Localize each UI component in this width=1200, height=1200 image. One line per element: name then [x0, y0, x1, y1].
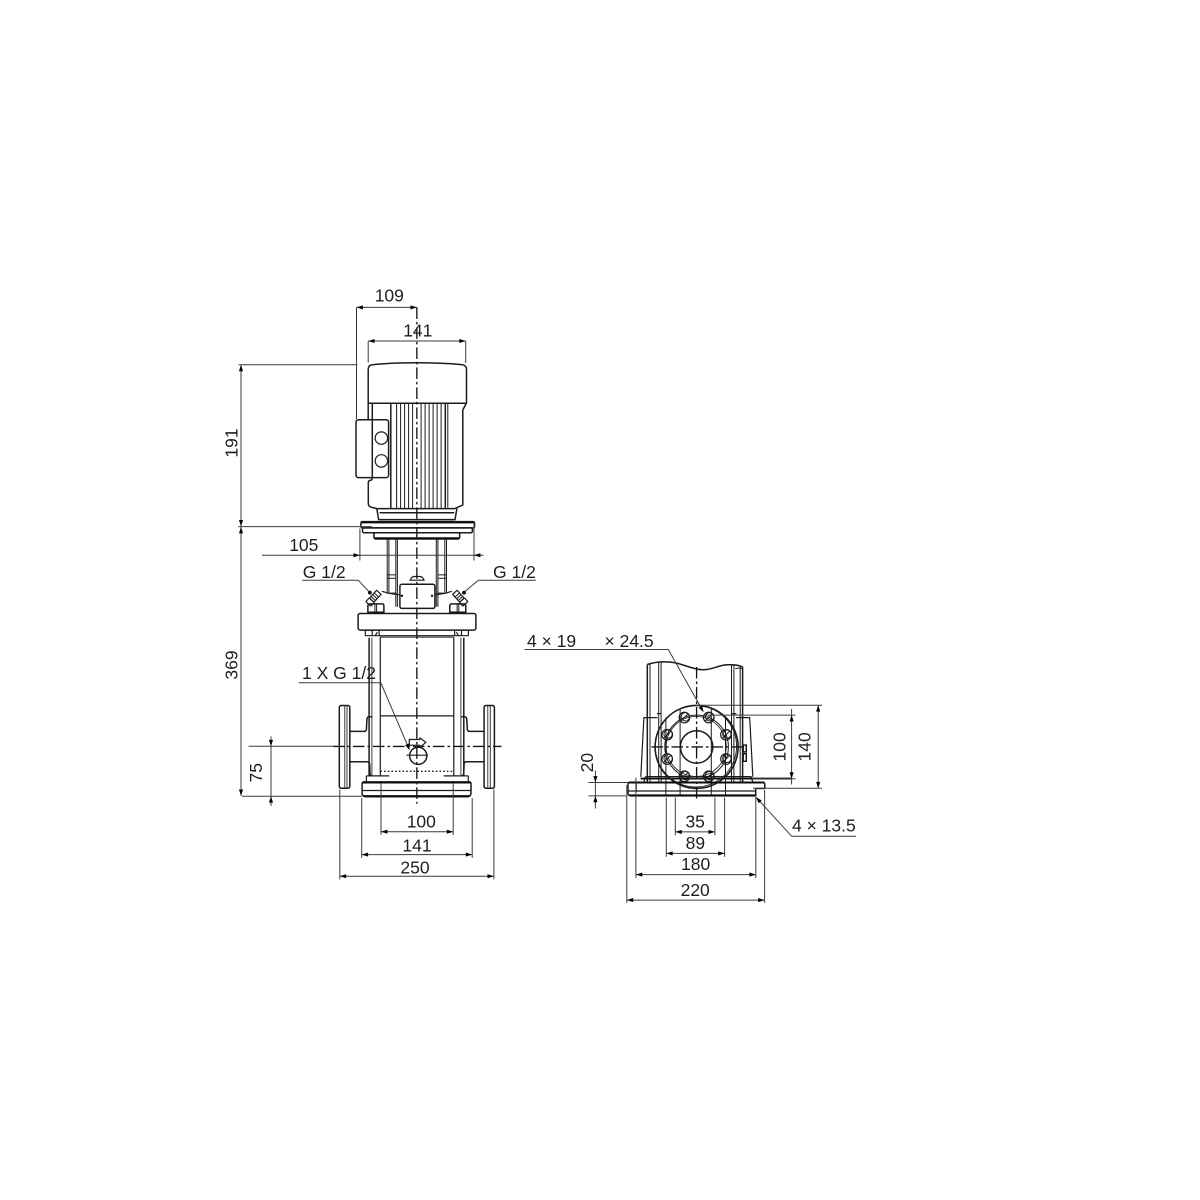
svg-text:75: 75 [246, 763, 266, 782]
svg-text:141: 141 [402, 836, 431, 856]
svg-text:G 1/2: G 1/2 [303, 562, 346, 582]
svg-text:1 X G 1/2: 1 X G 1/2 [302, 663, 376, 683]
svg-text:191: 191 [222, 428, 242, 457]
svg-text:× 24.5: × 24.5 [605, 631, 654, 651]
svg-text:141: 141 [403, 321, 432, 341]
svg-text:140: 140 [795, 732, 815, 761]
svg-text:20: 20 [577, 753, 597, 773]
svg-text:109: 109 [375, 286, 404, 306]
svg-text:G 1/2: G 1/2 [493, 562, 536, 582]
svg-text:250: 250 [400, 858, 429, 878]
svg-text:180: 180 [681, 854, 710, 874]
svg-text:105: 105 [289, 535, 318, 555]
svg-text:89: 89 [686, 833, 705, 853]
svg-text:220: 220 [681, 880, 710, 900]
svg-text:369: 369 [222, 650, 242, 679]
svg-text:100: 100 [407, 811, 436, 831]
svg-text:100: 100 [770, 732, 790, 761]
svg-text:35: 35 [685, 811, 704, 831]
svg-text:4 × 19: 4 × 19 [527, 631, 576, 651]
svg-text:4 × 13.5: 4 × 13.5 [792, 815, 856, 835]
